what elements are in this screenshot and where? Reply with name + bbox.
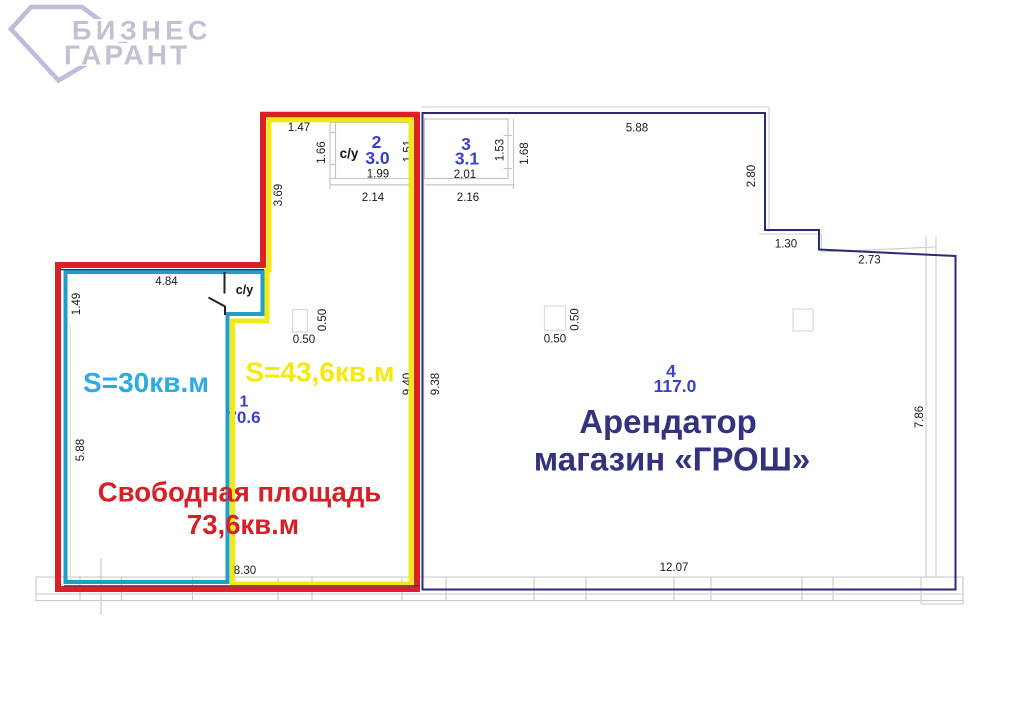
svg-text:1.49: 1.49 [71, 293, 83, 315]
svg-text:3.1: 3.1 [455, 149, 480, 169]
svg-text:1.30: 1.30 [775, 239, 797, 251]
svg-text:1.99: 1.99 [367, 169, 389, 181]
svg-text:Арендатор: Арендатор [579, 403, 757, 440]
svg-text:2.73: 2.73 [858, 255, 880, 267]
svg-text:8.30: 8.30 [234, 565, 256, 577]
svg-text:0.50: 0.50 [317, 309, 329, 331]
svg-text:1.66: 1.66 [316, 141, 328, 163]
svg-text:9.38: 9.38 [430, 373, 442, 395]
svg-text:4.84: 4.84 [155, 276, 178, 288]
svg-text:1.53: 1.53 [495, 139, 507, 161]
svg-text:S=43,6кв.м: S=43,6кв.м [245, 357, 394, 388]
svg-text:117.0: 117.0 [654, 376, 697, 396]
svg-text:0.50: 0.50 [293, 334, 315, 346]
svg-text:1: 1 [240, 394, 249, 411]
svg-text:с/у: с/у [236, 283, 253, 297]
svg-text:0.50: 0.50 [544, 334, 566, 346]
svg-text:73,6кв.м: 73,6кв.м [187, 509, 299, 540]
svg-text:1.68: 1.68 [519, 142, 531, 164]
svg-text:1.47: 1.47 [288, 122, 310, 134]
svg-text:ГАРАНТ: ГАРАНТ [64, 40, 190, 71]
svg-text:5.88: 5.88 [75, 439, 87, 461]
svg-text:магазин «ГРОШ»: магазин «ГРОШ» [534, 441, 810, 478]
svg-text:7.86: 7.86 [914, 406, 926, 428]
svg-text:S=30кв.м: S=30кв.м [83, 367, 209, 398]
svg-text:3.69: 3.69 [273, 184, 285, 206]
svg-text:2.16: 2.16 [457, 192, 479, 204]
svg-text:5.88: 5.88 [626, 123, 648, 135]
svg-text:2.01: 2.01 [454, 169, 476, 181]
svg-text:12.07: 12.07 [660, 562, 689, 574]
svg-text:2.80: 2.80 [746, 165, 758, 187]
svg-text:Свободная площадь: Свободная площадь [98, 477, 381, 508]
svg-text:3.0: 3.0 [365, 148, 390, 168]
svg-text:с/у: с/у [340, 146, 359, 161]
svg-text:0.50: 0.50 [570, 308, 582, 330]
svg-text:2.14: 2.14 [362, 192, 385, 204]
